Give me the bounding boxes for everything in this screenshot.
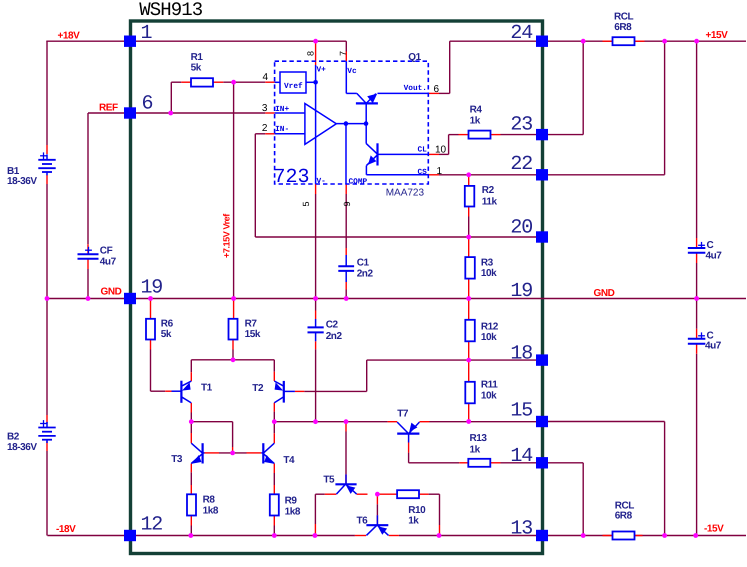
svg-text:11k: 11k [482,197,498,208]
svg-text:R9: R9 [285,496,298,507]
svg-text:10k: 10k [481,332,497,343]
svg-text:R12: R12 [481,322,499,333]
svg-text:R8: R8 [203,495,216,506]
svg-text:R6: R6 [161,319,174,330]
svg-text:24: 24 [510,22,532,45]
svg-text:12: 12 [141,514,163,537]
svg-text:15: 15 [510,400,532,423]
svg-text:3: 3 [262,103,268,114]
svg-text:7: 7 [338,51,348,56]
svg-text:6: 6 [434,84,440,95]
svg-text:T7: T7 [397,408,409,419]
svg-text:5: 5 [301,201,311,206]
svg-text:18-36V: 18-36V [7,442,37,453]
svg-text:WSH913: WSH913 [139,0,203,21]
svg-text:IN+: IN+ [275,105,289,114]
svg-text:1k: 1k [470,444,481,455]
svg-text:+7.15V Vref: +7.15V Vref [222,213,232,258]
svg-text:CF: CF [100,245,113,256]
svg-text:C1: C1 [357,258,370,269]
svg-text:-15V: -15V [704,524,724,535]
svg-text:V-: V- [317,177,326,186]
svg-text:4u7: 4u7 [705,341,722,352]
svg-text:R3: R3 [481,258,494,269]
svg-text:C2: C2 [326,319,339,330]
svg-text:R1: R1 [191,52,204,63]
svg-text:1: 1 [141,22,153,45]
svg-text:1: 1 [437,166,443,177]
svg-text:+15V: +15V [706,30,729,41]
svg-text:T6: T6 [357,516,369,527]
svg-text:COMP: COMP [349,178,368,187]
svg-text:723: 723 [274,166,310,189]
svg-text:1k: 1k [408,516,419,527]
svg-text:R7: R7 [245,319,258,330]
svg-text:R13: R13 [470,433,488,444]
svg-text:C: C [707,240,714,251]
svg-text:13: 13 [510,518,532,541]
svg-text:6R8: 6R8 [614,22,632,33]
svg-text:9: 9 [342,201,352,206]
svg-text:R11: R11 [481,380,498,391]
svg-text:R4: R4 [470,105,483,116]
svg-text:IN-: IN- [275,125,289,134]
svg-text:15k: 15k [245,329,261,340]
svg-text:T2: T2 [252,383,264,394]
svg-text:R2: R2 [482,185,495,196]
svg-text:18-36V: 18-36V [7,176,37,187]
svg-text:REF: REF [99,103,118,114]
svg-text:19: 19 [510,280,532,303]
svg-text:19: 19 [141,277,163,300]
svg-text:CL: CL [418,146,428,155]
svg-text:4u7: 4u7 [100,257,117,268]
svg-text:10k: 10k [481,268,497,279]
svg-text:6: 6 [142,93,153,116]
svg-text:T4: T4 [283,455,295,466]
svg-text:CS: CS [418,168,428,177]
svg-text:14: 14 [510,445,532,468]
svg-text:T3: T3 [171,454,183,465]
svg-text:6R8: 6R8 [615,511,633,522]
svg-text:1k8: 1k8 [285,507,301,518]
svg-text:2: 2 [262,123,268,134]
svg-text:2n2: 2n2 [357,269,374,280]
svg-text:1k8: 1k8 [203,506,219,517]
svg-text:T1: T1 [201,383,213,394]
svg-text:8: 8 [306,51,316,56]
svg-text:Q1: Q1 [408,52,421,63]
svg-text:B2: B2 [7,432,20,443]
svg-text:4u7: 4u7 [706,250,723,261]
svg-text:GND: GND [594,288,615,299]
svg-text:R10: R10 [408,505,426,516]
svg-text:4: 4 [263,72,269,83]
svg-text:MAA723: MAA723 [386,187,425,198]
svg-text:RCL: RCL [614,11,634,22]
svg-text:-18V: -18V [56,524,76,535]
svg-text:5k: 5k [161,329,172,340]
svg-text:10k: 10k [481,391,497,402]
svg-text:Vc: Vc [347,67,357,76]
svg-text:5k: 5k [191,63,202,74]
svg-text:18: 18 [510,343,532,366]
svg-text:10: 10 [435,144,447,155]
svg-text:T5: T5 [323,475,335,486]
svg-text:Vout.: Vout. [404,84,427,93]
svg-text:2n2: 2n2 [326,331,343,342]
svg-text:20: 20 [510,217,532,240]
svg-text:22: 22 [510,153,532,176]
svg-text:Vref: Vref [284,82,303,91]
svg-text:+18V: +18V [58,30,81,41]
svg-text:23: 23 [510,114,532,137]
svg-text:1k: 1k [470,115,481,126]
svg-text:GND: GND [101,287,122,298]
svg-text:V+: V+ [317,65,327,74]
